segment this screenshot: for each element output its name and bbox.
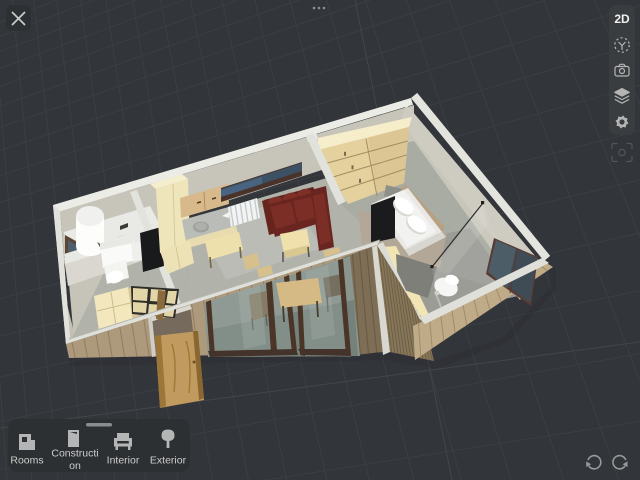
svg-text:Rooms: Rooms <box>10 455 43 467</box>
svg-text:on: on <box>69 460 81 472</box>
svg-text:Constructi: Constructi <box>51 448 98 460</box>
svg-text:Exterior: Exterior <box>150 455 187 467</box>
svg-text:2D: 2D <box>614 12 630 26</box>
svg-text:Interior: Interior <box>107 455 140 467</box>
